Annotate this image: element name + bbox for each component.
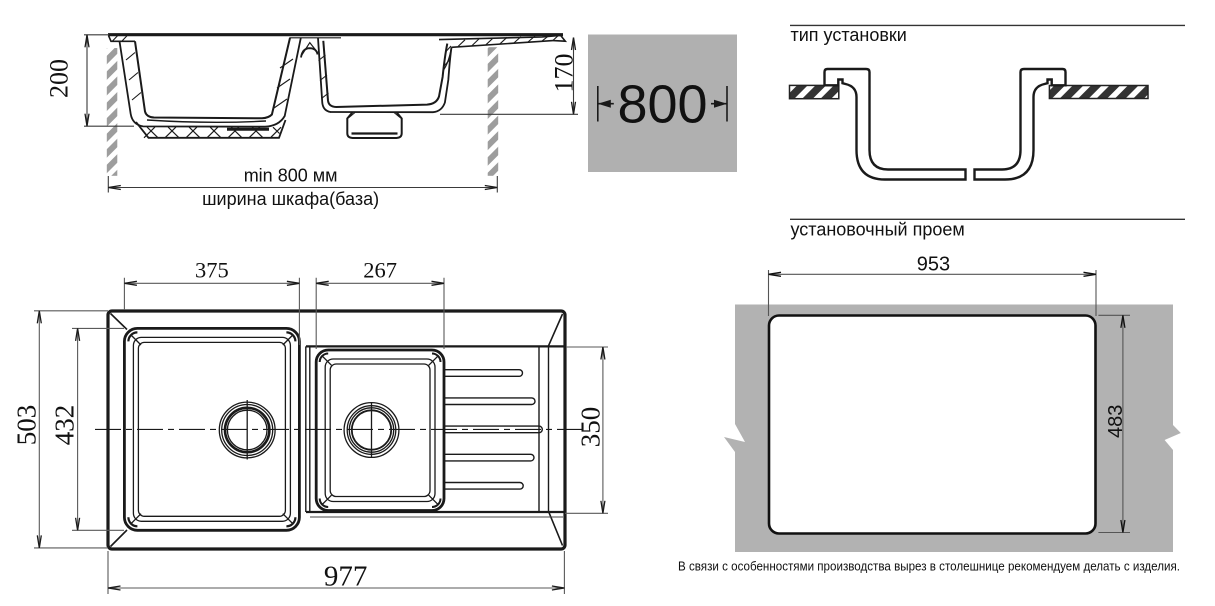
svg-text:800: 800	[617, 75, 707, 135]
svg-text:200: 200	[45, 59, 74, 98]
svg-text:170: 170	[550, 54, 579, 93]
svg-text:тип установки: тип установки	[791, 25, 907, 45]
svg-text:483: 483	[1105, 405, 1127, 438]
svg-text:432: 432	[50, 405, 80, 446]
svg-text:В связи с особенностями произв: В связи с особенностями производства выр…	[678, 559, 1180, 574]
svg-text:ширина шкафа(база): ширина шкафа(база)	[202, 189, 379, 209]
svg-text:установочный проем: установочный проем	[791, 220, 965, 240]
svg-text:503: 503	[12, 405, 42, 446]
svg-text:977: 977	[324, 560, 368, 592]
svg-text:267: 267	[363, 258, 397, 283]
svg-text:350: 350	[575, 407, 605, 448]
svg-text:375: 375	[195, 258, 229, 283]
svg-text:min 800 мм: min 800 мм	[244, 166, 338, 186]
svg-text:953: 953	[917, 254, 950, 276]
